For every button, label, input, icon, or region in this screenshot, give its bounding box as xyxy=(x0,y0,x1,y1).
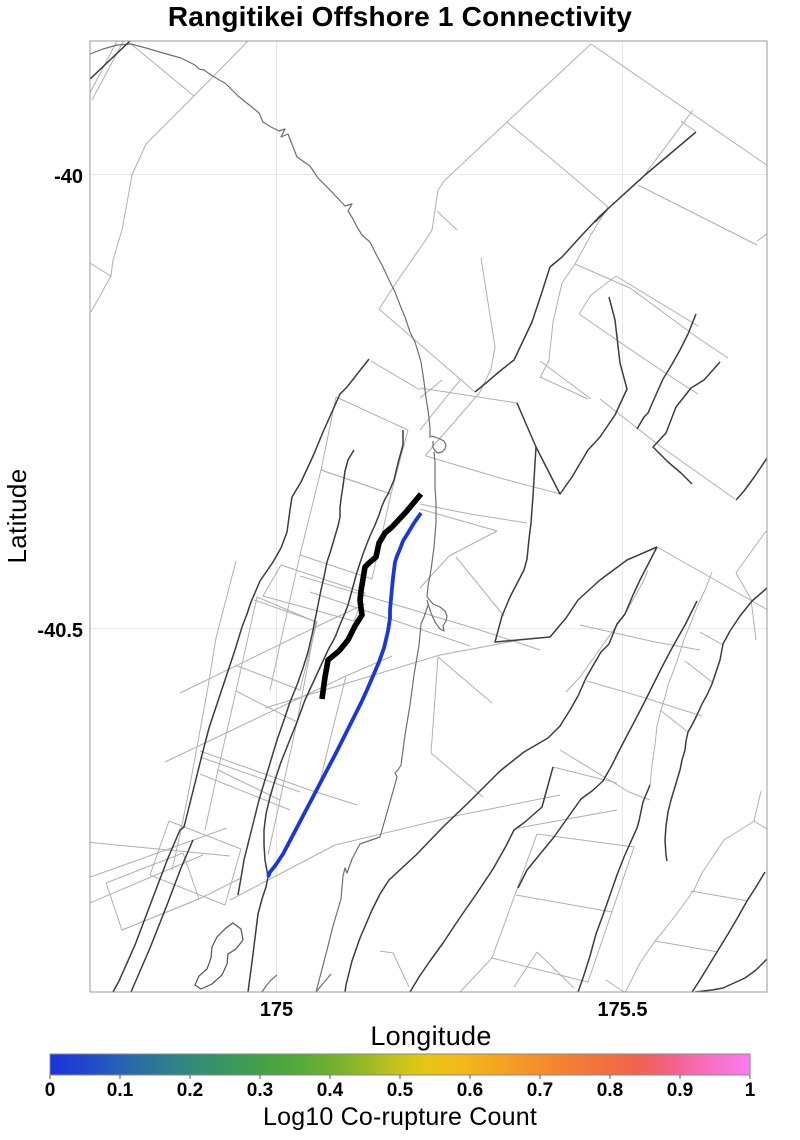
svg-text:-40: -40 xyxy=(54,166,83,188)
svg-text:175: 175 xyxy=(260,999,293,1021)
svg-text:1: 1 xyxy=(745,1080,756,1101)
svg-text:0.4: 0.4 xyxy=(317,1080,344,1101)
svg-text:Rangitikei Offshore 1 Connecti: Rangitikei Offshore 1 Connectivity xyxy=(168,1,632,32)
svg-text:0.8: 0.8 xyxy=(597,1080,623,1101)
svg-text:0.7: 0.7 xyxy=(527,1080,553,1101)
svg-text:0.5: 0.5 xyxy=(387,1080,414,1101)
svg-text:175.5: 175.5 xyxy=(597,999,647,1021)
svg-text:-40.5: -40.5 xyxy=(37,620,83,642)
svg-text:0.9: 0.9 xyxy=(667,1080,693,1101)
svg-text:0.2: 0.2 xyxy=(177,1080,203,1101)
svg-text:0: 0 xyxy=(45,1080,56,1101)
svg-text:Latitude: Latitude xyxy=(2,469,32,564)
svg-text:Log10 Co-rupture Count: Log10 Co-rupture Count xyxy=(263,1103,537,1131)
svg-text:Longitude: Longitude xyxy=(370,1021,491,1051)
svg-text:0.3: 0.3 xyxy=(247,1080,273,1101)
svg-text:0.1: 0.1 xyxy=(107,1080,134,1101)
svg-text:0.6: 0.6 xyxy=(457,1080,483,1101)
